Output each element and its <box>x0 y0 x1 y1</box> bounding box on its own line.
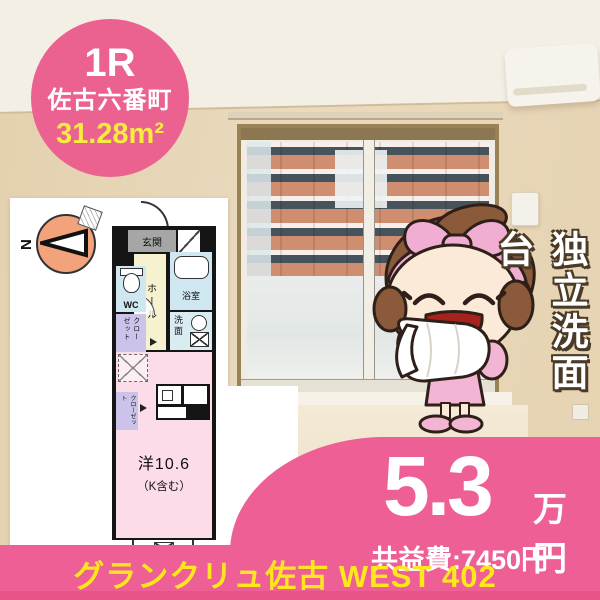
room-size-label: 洋10.6 <box>116 450 212 474</box>
location-name: 佐古六番町 <box>31 85 189 116</box>
floor-area: 31.28m² <box>31 116 189 152</box>
room-washroom-label: 洗面 <box>172 315 185 337</box>
window-top-rail <box>241 128 495 140</box>
air-conditioner-vent <box>513 84 587 96</box>
kitchen-counter <box>184 386 207 404</box>
room-entrance: 玄関 <box>128 230 176 252</box>
room-wc: WC <box>116 266 146 312</box>
appliance-box-icon <box>118 354 148 382</box>
room-closet-lower: クローゼット <box>116 392 138 430</box>
air-conditioner <box>504 43 600 107</box>
sink-icon <box>191 315 207 331</box>
room-bath-label: 浴室 <box>170 289 212 302</box>
property-badge: 1R 佐古六番町 31.28m² <box>31 19 189 177</box>
room-washroom: 洗面 <box>170 312 212 350</box>
sky-strip <box>247 142 271 276</box>
room-closet-upper-label: クローゼット <box>121 317 141 347</box>
main-room-label: 洋10.6 （K含む） <box>116 450 212 494</box>
curtain-rail <box>228 112 503 120</box>
room-main: クローゼット 洋10.6 （K含む） <box>116 352 212 538</box>
kitchen-unit-icon <box>156 384 210 420</box>
shoe-cabinet-icon <box>178 230 200 254</box>
kitchen-sink <box>158 386 181 404</box>
bathtub-icon <box>174 256 209 279</box>
door-swing-icon <box>150 338 157 346</box>
layout-type: 1R <box>31 41 189 85</box>
room-closet-lower-label: クローゼット <box>118 395 136 427</box>
room-note-label: （K含む） <box>116 478 212 494</box>
price-block: 5.3 万円 共益費:7450円 <box>355 430 600 545</box>
room-wc-label: WC <box>116 300 146 310</box>
toilet-icon <box>123 273 140 293</box>
rent-amount: 5.3 <box>383 438 491 535</box>
compass-north-label: N <box>18 234 34 250</box>
room-bath: 浴室 <box>170 252 212 310</box>
compass-arrow-icon <box>40 228 90 258</box>
building-name: グランクリュ佐古 WEST 402 <box>0 551 570 596</box>
floorplan: 玄関 ホール WC 浴室 洗面 クローゼット クローゼット 洋10.6 （K含む <box>112 226 216 540</box>
room-closet-upper: クローゼット <box>116 314 146 352</box>
kitchen-lower <box>158 407 186 418</box>
feature-vertical-label: 独立洗面台 <box>549 230 593 430</box>
door-swing-icon <box>140 404 147 412</box>
washer-box-icon <box>190 332 209 347</box>
